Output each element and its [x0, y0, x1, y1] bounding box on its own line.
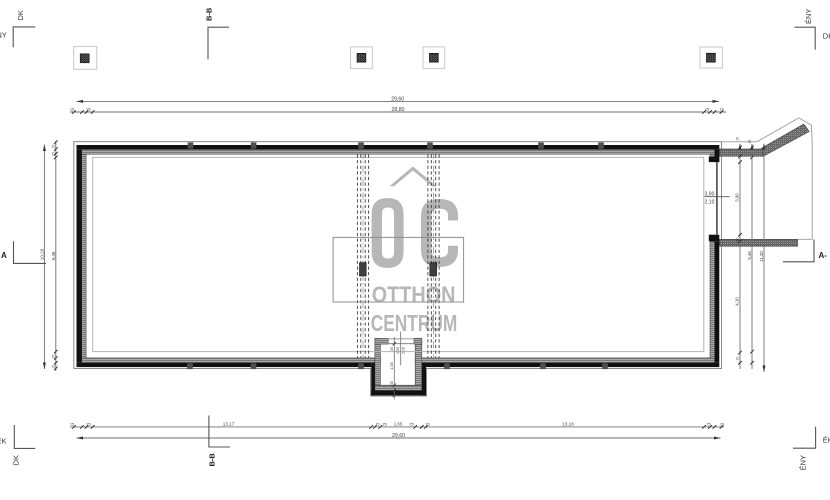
- svg-text:9,46: 9,46: [51, 251, 56, 260]
- svg-text:9,46: 9,46: [747, 251, 752, 260]
- svg-text:25: 25: [705, 107, 709, 112]
- svg-text:13,17: 13,17: [223, 422, 235, 427]
- svg-text:15: 15: [375, 422, 379, 427]
- svg-text:B-B: B-B: [205, 7, 214, 21]
- svg-text:2,10: 2,10: [401, 347, 405, 354]
- svg-text:1,55: 1,55: [389, 361, 394, 370]
- svg-text:25: 25: [86, 107, 90, 112]
- svg-text:3,90: 3,90: [735, 193, 740, 202]
- svg-text:1,50: 1,50: [396, 347, 400, 354]
- svg-text:35: 35: [390, 347, 394, 351]
- svg-text:25: 25: [86, 422, 90, 427]
- svg-text:B-B: B-B: [208, 453, 217, 467]
- svg-text:DK: DK: [823, 32, 830, 41]
- svg-text:ÉK: ÉK: [0, 437, 7, 446]
- svg-text:OTTHON: OTTHON: [372, 282, 456, 308]
- svg-text:35: 35: [390, 381, 394, 385]
- svg-text:DK: DK: [16, 10, 25, 20]
- svg-text:29,60: 29,60: [392, 433, 405, 439]
- svg-text:10,20: 10,20: [39, 248, 44, 260]
- svg-text:ÉNY: ÉNY: [0, 31, 7, 40]
- svg-text:A-: A-: [819, 251, 828, 260]
- svg-text:25: 25: [52, 355, 56, 359]
- svg-text:29,60: 29,60: [391, 96, 404, 102]
- svg-text:25: 25: [706, 422, 710, 427]
- svg-text:4,10: 4,10: [735, 297, 740, 306]
- svg-text:15: 15: [70, 107, 74, 112]
- svg-text:25: 25: [409, 422, 413, 427]
- svg-text:28,80: 28,80: [392, 107, 405, 113]
- svg-text:25: 25: [52, 152, 56, 156]
- svg-text:CENTRUM: CENTRUM: [371, 310, 458, 336]
- svg-text:ÉK: ÉK: [823, 436, 830, 445]
- svg-text:20: 20: [736, 238, 740, 242]
- svg-text:25: 25: [748, 140, 752, 144]
- svg-text:DK: DK: [12, 455, 21, 465]
- svg-text:2,10: 2,10: [705, 200, 715, 206]
- svg-text:ÉNY: ÉNY: [804, 9, 813, 24]
- svg-text:15: 15: [52, 365, 56, 369]
- svg-text:15: 15: [425, 422, 429, 427]
- svg-text:15: 15: [52, 145, 56, 149]
- svg-text:A: A: [1, 251, 7, 260]
- svg-text:25: 25: [382, 422, 386, 427]
- svg-text:15: 15: [70, 422, 74, 427]
- svg-text:ÉNY: ÉNY: [799, 455, 808, 470]
- svg-text:15: 15: [719, 107, 723, 112]
- svg-text:3,90: 3,90: [705, 192, 715, 198]
- svg-text:30: 30: [736, 357, 740, 361]
- svg-text:11,20: 11,20: [759, 251, 764, 262]
- svg-text:15: 15: [720, 422, 724, 427]
- svg-text:13,18: 13,18: [562, 422, 574, 427]
- svg-text:15: 15: [736, 137, 740, 141]
- svg-text:1,65: 1,65: [394, 422, 403, 427]
